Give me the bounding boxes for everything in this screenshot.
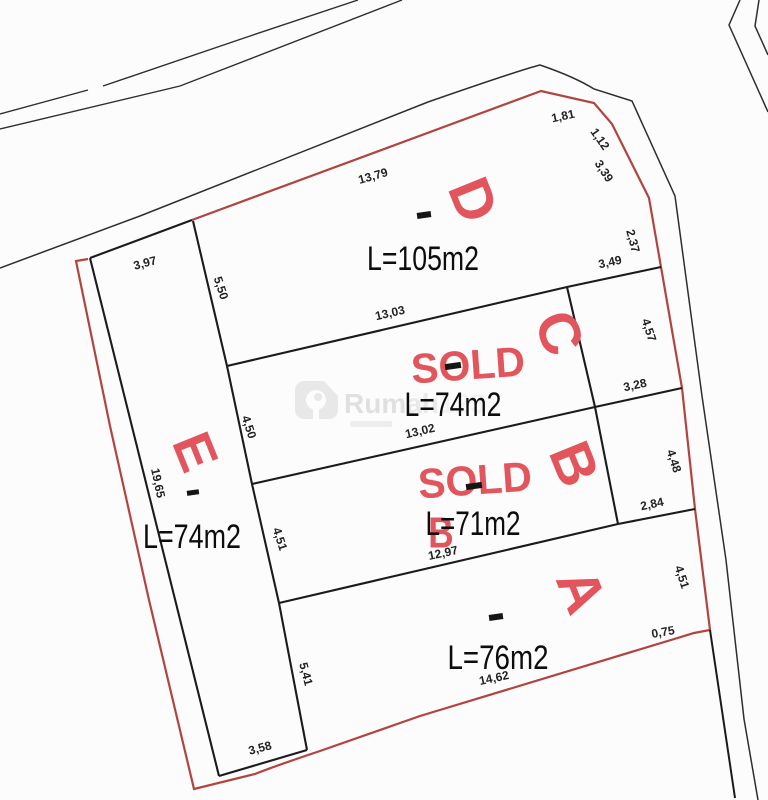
svg-text:SOLD: SOLD: [409, 338, 526, 393]
svg-text:L=74m2: L=74m2: [143, 518, 241, 556]
svg-text:L=71m2: L=71m2: [426, 505, 521, 543]
svg-text:SOLD: SOLD: [416, 453, 533, 508]
svg-text:L=74m2: L=74m2: [405, 386, 502, 424]
svg-text:L=105m2: L=105m2: [367, 240, 479, 278]
